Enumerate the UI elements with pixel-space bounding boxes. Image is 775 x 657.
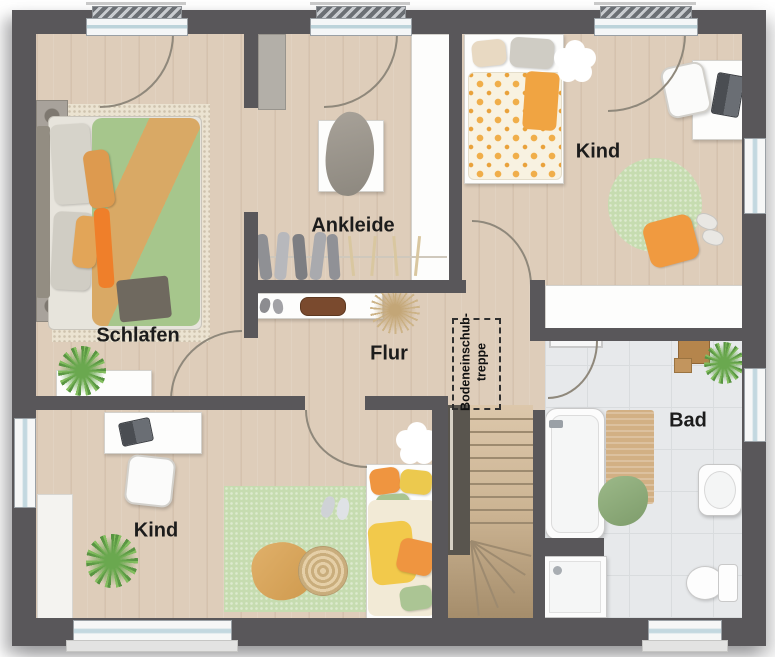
stair-tread	[470, 444, 533, 446]
stair-tread	[470, 496, 533, 498]
potted-plant	[58, 346, 106, 396]
stair-tread	[470, 457, 533, 459]
desk	[104, 412, 202, 454]
wall-ankleide-south	[244, 280, 466, 293]
window-east-bad	[744, 368, 766, 442]
wall-right	[742, 10, 766, 646]
wall-closet-east	[449, 34, 462, 280]
flower-side-table	[566, 53, 584, 71]
wall-bad-north	[530, 328, 742, 341]
orange-pillow	[368, 466, 401, 496]
room-label-kind-bottom: Kind	[134, 520, 178, 543]
skylight-bracket	[86, 2, 186, 5]
wall-flur-south-east	[365, 396, 448, 410]
low-shelf	[545, 285, 744, 330]
window-sill	[642, 640, 728, 652]
orange-pillow	[395, 537, 437, 578]
cabinet	[37, 494, 73, 624]
room-label-kind-top: Kind	[576, 141, 620, 164]
stair-tread	[470, 522, 533, 524]
stair-tread	[470, 431, 533, 433]
wall-kind-bottom-east	[432, 410, 448, 618]
attic-hatch-label-line1: Bodeneinschub-	[458, 313, 474, 411]
wooden-box	[674, 358, 692, 373]
room-label-ankleide: Ankleide	[311, 215, 394, 238]
room-label-flur: Flur	[370, 343, 408, 366]
toilet-tank	[718, 564, 738, 602]
bed-pillow	[509, 37, 555, 70]
room-label-bad: Bad	[669, 410, 707, 433]
woven-basket	[298, 546, 348, 596]
desk-chair	[124, 454, 177, 509]
green-pillow	[398, 584, 433, 612]
skylight-frame	[310, 18, 412, 36]
skylight-frame	[86, 18, 188, 36]
stair-tread	[470, 509, 533, 511]
room-label-schlafen: Schlafen	[96, 325, 179, 348]
wall-schlafen-east	[244, 212, 258, 338]
potted-plant	[86, 534, 138, 588]
bathtub-basin	[551, 415, 599, 533]
skylight-bracket	[310, 2, 410, 5]
bed-pillow	[471, 38, 508, 67]
folded-blanket	[116, 275, 172, 322]
bed-headboard	[36, 126, 50, 298]
skylight-frame	[594, 18, 698, 36]
wall-flur-south-west	[36, 396, 305, 410]
flower-side-table	[408, 435, 426, 453]
stair-tread	[470, 470, 533, 472]
window-south-kind	[73, 620, 232, 642]
skylight-bracket	[594, 2, 696, 5]
shower-drain	[553, 566, 562, 575]
window-east-kind	[744, 138, 766, 214]
wardrobe-cabinet	[258, 34, 286, 110]
attic-hatch-label: Bodeneinschub- treppe	[458, 313, 489, 411]
wall-stairs-east	[533, 410, 545, 618]
leather-tray	[300, 297, 346, 316]
sink-basin	[704, 471, 736, 509]
window-sill	[66, 640, 238, 652]
window-south-bad	[648, 620, 722, 642]
window-west-kind	[14, 418, 36, 508]
stair-railing	[450, 408, 453, 550]
potted-plant	[704, 342, 744, 384]
bath-faucet	[549, 420, 563, 428]
floor-plan: Bodeneinschub- treppe Schlafen Ankleide …	[0, 0, 775, 657]
wall-left	[12, 10, 36, 646]
stair-tread	[470, 483, 533, 485]
yellow-pillow	[399, 468, 433, 495]
wall-schlafen-ankleide	[244, 34, 258, 108]
orange-blanket-fold	[522, 71, 560, 131]
stair-tread	[470, 418, 533, 420]
dried-grass-plant	[370, 286, 420, 334]
wall-tub-partition	[542, 538, 604, 556]
attic-hatch-label-line2: treppe	[474, 313, 490, 411]
